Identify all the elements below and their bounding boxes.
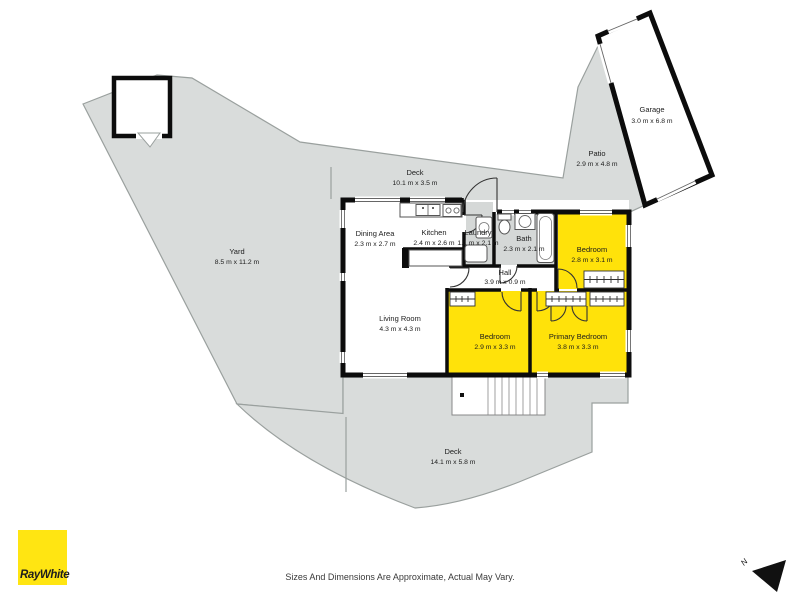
floorplan-page: Garage 3.0 m x 6.8 m Patio 2.9 m x 4.8 m… [0,0,800,600]
svg-text:3.0 m x 6.8 m: 3.0 m x 6.8 m [631,118,673,125]
svg-text:2.3 m x 2.7 m: 2.3 m x 2.7 m [354,241,396,248]
room-label-bedroom-2: Bedroom [480,332,510,341]
disclaimer-text: Sizes And Dimensions Are Approximate, Ac… [0,572,800,582]
room-label-patio: Patio [588,149,605,158]
svg-text:2.9 m x 3.3 m: 2.9 m x 3.3 m [474,344,516,351]
bathroom-sink-icon [515,214,535,230]
svg-text:8.5 m x 11.2 m: 8.5 m x 11.2 m [215,259,260,266]
room-label-kitchen: Kitchen [421,228,446,237]
room-label-hall: Hall [499,268,512,277]
svg-text:2.9 m x 4.8 m: 2.9 m x 4.8 m [576,161,618,168]
stairs-icon [452,377,545,415]
kitchen-sink-icon [416,205,440,216]
svg-text:3.8 m x 3.3 m: 3.8 m x 3.3 m [557,344,599,351]
shed [114,78,170,147]
svg-text:3.9 m x 0.9 m: 3.9 m x 0.9 m [484,279,526,286]
svg-text:4.3 m x 4.3 m: 4.3 m x 4.3 m [379,326,421,333]
toilet-icon [498,214,511,234]
laundry-tub-icon [465,245,487,262]
svg-text:2.4 m x 2.6 m: 2.4 m x 2.6 m [413,240,455,247]
room-label-deck-lower: Deck [444,447,461,456]
room-label-dining: Dining Area [356,229,396,238]
room-label-garage: Garage [639,105,664,114]
kitchen-bench [409,250,462,266]
room-label-bedroom-1: Bedroom [577,245,607,254]
svg-text:2.8 m x 3.1 m: 2.8 m x 3.1 m [571,257,613,264]
svg-text:N: N [739,557,750,568]
stove-icon [443,205,461,217]
room-label-living: Living Room [379,314,421,323]
svg-text:10.1 m x 3.5 m: 10.1 m x 3.5 m [393,180,438,187]
room-label-deck-upper: Deck [406,168,423,177]
room-label-bath: Bath [516,234,531,243]
floorplan-canvas: Garage 3.0 m x 6.8 m Patio 2.9 m x 4.8 m… [0,0,800,600]
svg-text:2.3 m x 2.1 m: 2.3 m x 2.1 m [503,246,545,253]
svg-text:14.1 m x 5.8 m: 14.1 m x 5.8 m [431,459,476,466]
room-label-laundry: Laundry [464,228,491,237]
svg-text:1.1 m x 2.1 m: 1.1 m x 2.1 m [457,240,499,247]
bathtub-icon [537,214,554,263]
room-label-yard: Yard [229,247,244,256]
room-label-primary-bedroom: Primary Bedroom [549,332,607,341]
